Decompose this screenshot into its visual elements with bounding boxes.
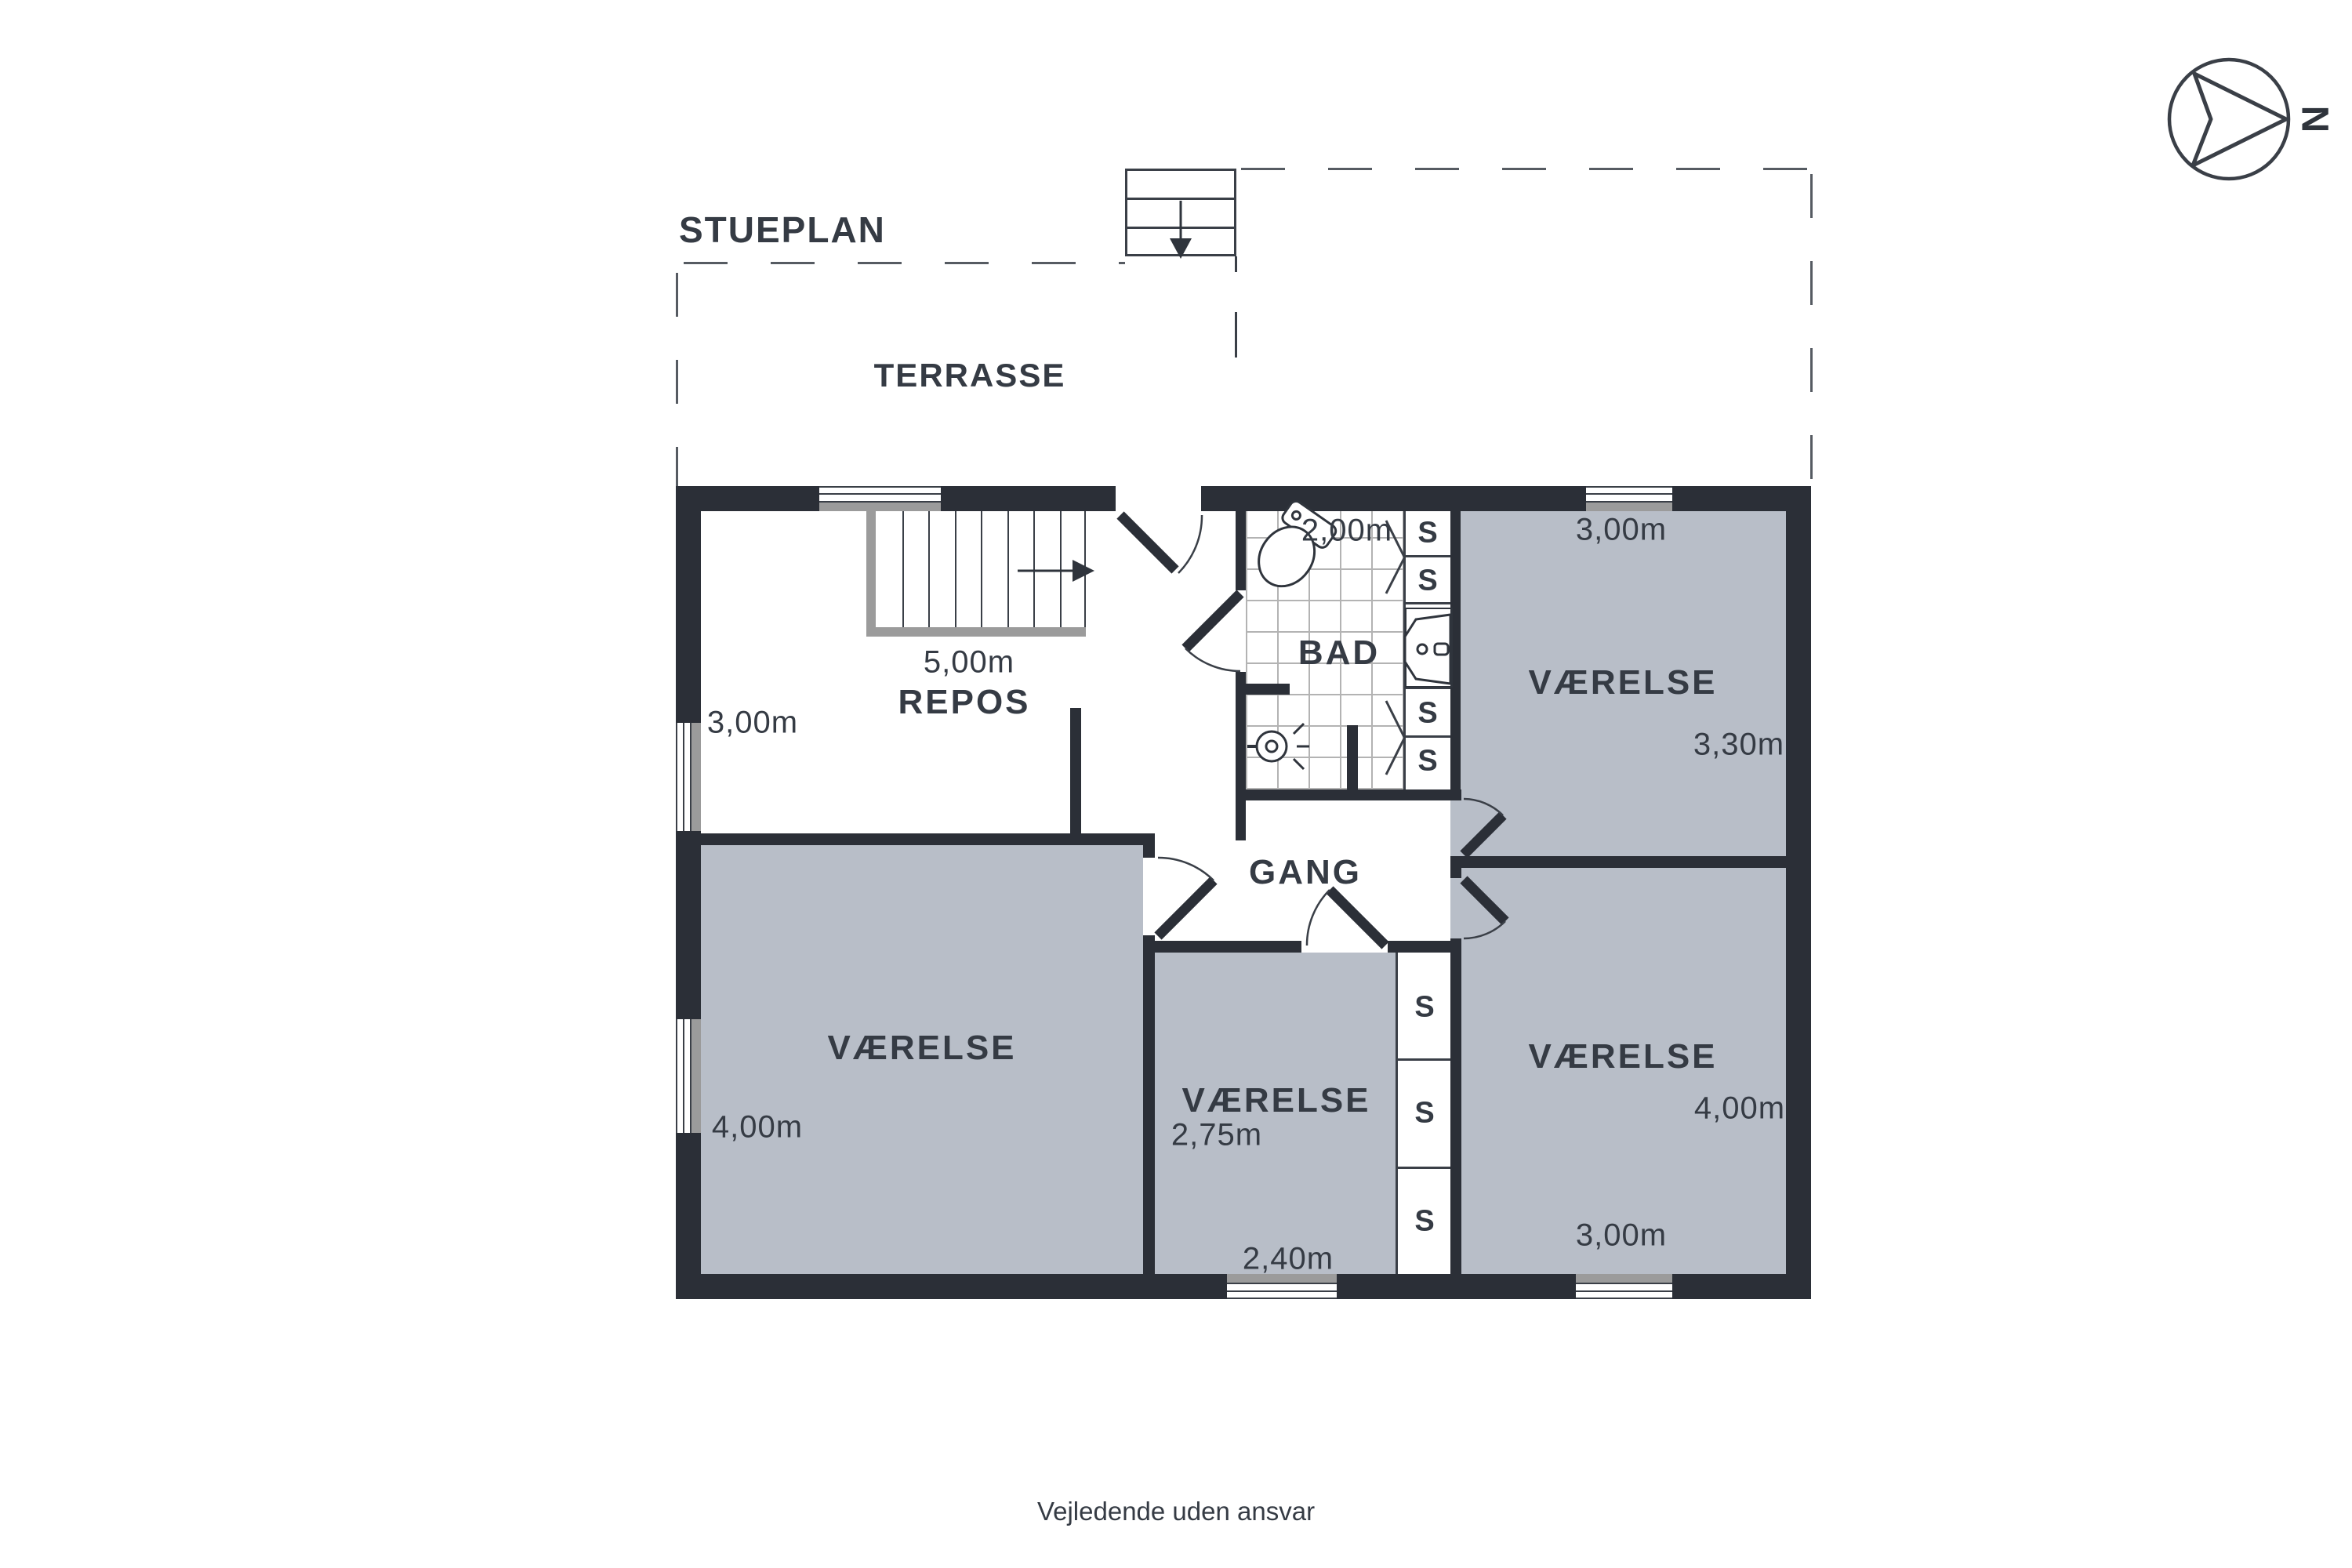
vaerelse-s-label: VÆRELSE <box>1181 1081 1370 1120</box>
sink-icon <box>1405 608 1452 687</box>
vaerelse-ne-label: VÆRELSE <box>1528 663 1717 702</box>
vaerelse-sw-dim-left: 4,00m <box>712 1110 803 1145</box>
closet-label: S <box>1414 991 1434 1025</box>
symbol-overlay: N <box>0 0 2352 1568</box>
repos-dim-left: 3,00m <box>707 706 798 741</box>
repos-dim-stairs: 5,00m <box>924 645 1014 681</box>
door-vaerelse-se <box>1464 880 1505 938</box>
closet-label: S <box>1414 1205 1434 1239</box>
closet-label: S <box>1417 745 1437 779</box>
terrace-label: TERRASSE <box>874 357 1066 394</box>
door-vaerelse-s <box>1307 890 1385 946</box>
bad-label: BAD <box>1298 633 1380 673</box>
vaerelse-sw-label: VÆRELSE <box>827 1029 1016 1068</box>
page-title: STUEPLAN <box>679 209 886 251</box>
closet-label: S <box>1417 564 1437 598</box>
vaerelse-s-dim-bottom: 2,40m <box>1243 1242 1334 1277</box>
vaerelse-se-label: VÆRELSE <box>1528 1037 1717 1076</box>
floor-plan: N STUEPLAN TERRASSE 5,00m REPOS 3,00m 2,… <box>0 0 2352 1568</box>
entrance-arrow-icon <box>1170 201 1192 259</box>
vaerelse-s-dim-left: 2,75m <box>1171 1118 1262 1153</box>
closet-chevrons <box>1386 521 1404 775</box>
closet-label: S <box>1414 1097 1434 1131</box>
bad-dim-top: 2,00m <box>1301 514 1392 549</box>
closet-label: S <box>1417 517 1437 550</box>
vaerelse-se-dim-bottom: 3,00m <box>1576 1218 1667 1254</box>
door-vaerelse-ne <box>1464 799 1503 855</box>
closet-label: S <box>1417 697 1437 731</box>
gang-label: GANG <box>1249 853 1362 892</box>
bathroom-door <box>1185 593 1240 671</box>
vaerelse-ne-dim-top: 3,00m <box>1576 513 1667 548</box>
vaerelse-ne-dim-right: 3,30m <box>1693 728 1784 763</box>
door-vaerelse-sw <box>1158 858 1214 936</box>
shower-icon <box>1247 724 1309 769</box>
vaerelse-se-dim-right: 4,00m <box>1694 1091 1785 1127</box>
disclaimer-text: Vejledende uden ansvar <box>1037 1497 1315 1526</box>
repos-label: REPOS <box>898 683 1030 722</box>
compass-icon: N <box>2169 60 2336 179</box>
entry-door <box>1120 515 1202 573</box>
stair-arrow-icon <box>1018 560 1094 582</box>
compass-north-label: N <box>2294 106 2336 133</box>
